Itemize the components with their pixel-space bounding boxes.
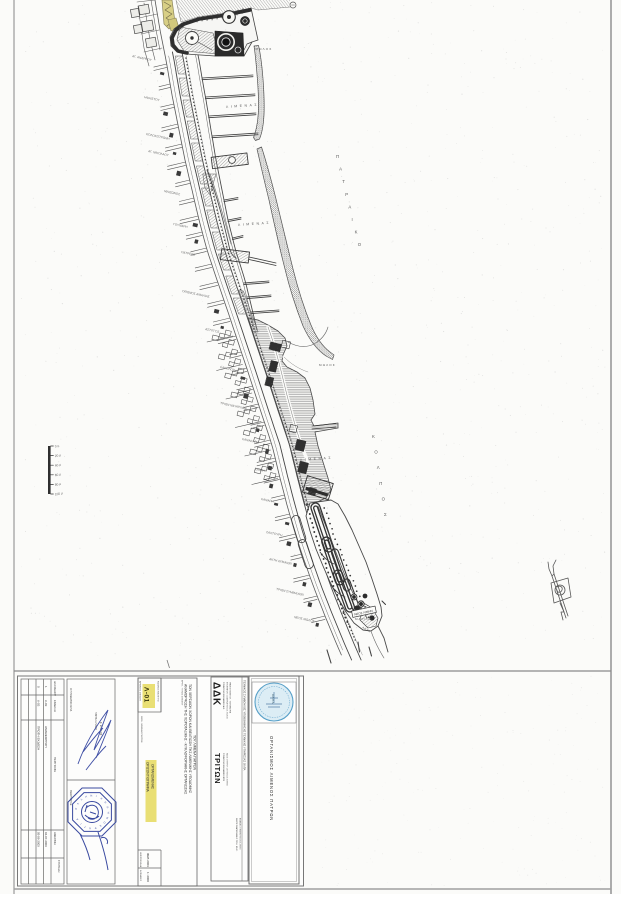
svg-text:Κ: Κ	[355, 230, 358, 235]
svg-text:ΕΡΓΟ - ΤΙΤΛΟΣ ΣΧΕΔΙΟΥ: ΕΡΓΟ - ΤΙΤΛΟΣ ΣΧΕΔΙΟΥ	[181, 680, 184, 706]
svg-text:ΘΕΣΗ: ΛΙΜΕΝΑΣ ΠΑΤΡΩΝ: ΘΕΣΗ: ΛΙΜΕΝΑΣ ΠΑΤΡΩΝ	[140, 716, 143, 743]
svg-text:05-06-2003: 05-06-2003	[37, 832, 41, 847]
svg-text:ΟΡΓΑΝΙΣΜΟΣ ΛΙΜΕΝΟΣ ΠΑΤΡΩΝ: ΟΡΓΑΝΙΣΜΟΣ ΛΙΜΕΝΟΣ ΠΑΤΡΩΝ	[269, 736, 274, 821]
svg-text:ΤΕΧΝΙΚΟΣ ΣΥΜΒΟΥΛΟΣ ΥΠΟΒΟΗΘΗΣΗΣ: ΤΕΧΝΙΚΟΣ ΣΥΜΒΟΥΛΟΣ ΥΠΟΒΟΗΘΗΣΗΣ ΤΕΧΝΙΚΗΣ …	[243, 680, 247, 771]
svg-text:Λ: Λ	[377, 465, 380, 470]
svg-text:ΟΡΓΑΝΩΜΕΝΗΣ: ΟΡΓΑΝΩΜΕΝΗΣ	[150, 764, 154, 789]
svg-text:ΔΔΚ: ΔΔΚ	[211, 682, 222, 706]
svg-text:Τ: Τ	[342, 179, 345, 184]
svg-text:ΜΩΛΟΣ: ΜΩΛΟΣ	[256, 47, 273, 51]
svg-text:ΑΝΑΘΕΩΡΗΣΗ: ΑΝΑΘΕΩΡΗΣΗ	[44, 726, 48, 748]
svg-text:ΕΝΔΕΙΞΗ: ΕΝΔΕΙΞΗ	[53, 700, 57, 712]
svg-text:ΙΠΠΟΚΡΑΤΟΥΣ 12 ΑΘΗΝΑ ΤΗΛ 210-3: ΙΠΠΟΚΡΑΤΟΥΣ 12 ΑΘΗΝΑ ΤΗΛ 210-3614520	[226, 682, 229, 719]
svg-text:ΤΡΙΤΩΝ: ΤΡΙΤΩΝ	[213, 753, 222, 784]
svg-text:ΟΛΠΑ: ΟΛΠΑ	[271, 694, 275, 704]
svg-text:0 μ: 0 μ	[54, 444, 59, 449]
svg-text:α/α ΣΧΕΔΙΟΥ: α/α ΣΧΕΔΙΟΥ	[53, 681, 56, 696]
svg-text:ΤΟΥ ΛΙΜΕΝΑ ΠΑΤΡΩΝ: ΤΟΥ ΛΙΜΕΝΑ ΠΑΤΡΩΝ	[193, 735, 197, 771]
svg-text:ΦΕΒ 2003: ΦΕΒ 2003	[146, 853, 150, 867]
svg-text:Η: Η	[107, 812, 111, 814]
svg-text:Α: Α	[348, 204, 351, 209]
svg-text:Κ: Κ	[372, 434, 375, 439]
svg-text:Ο ΠΡΟΕΔΡΟΣ ΟΛΠΑ: Ο ΠΡΟΕΔΡΟΣ ΟΛΠΑ	[69, 688, 72, 712]
svg-text:Σ: Σ	[384, 512, 387, 517]
svg-text:ΠΡΩΤΗ ΕΚΔΟΣΗ: ΠΡΩΤΗ ΕΚΔΟΣΗ	[37, 726, 41, 750]
svg-text:ΣΥΜΒΟΥΛΟΙ ΜΗΧΑΝΙΚΟΙ Α.Ε.: ΣΥΜΒΟΥΛΟΙ ΜΗΧΑΝΙΚΟΙ Α.Ε.	[222, 682, 225, 710]
svg-text:Π: Π	[379, 481, 382, 486]
svg-text:ΜΑΡΙΝΑ: ΜΑΡΙΝΑ	[355, 617, 373, 621]
svg-text:ΠΕΡΙΓΡΑΦΗ: ΠΕΡΙΓΡΑΦΗ	[53, 757, 57, 772]
svg-text:Ρ: Ρ	[345, 192, 348, 197]
svg-text:1: 2000: 1: 2000	[146, 872, 150, 882]
svg-text:Ι: Ι	[352, 217, 353, 222]
svg-text:ΤΩΝ ΧΕΡΣΑΙΩΝ ΧΩΡΩΝ ΚΑΙ ΒΕΛΤΙΩΣ: ΤΩΝ ΧΕΡΣΑΙΩΝ ΧΩΡΩΝ ΚΑΙ ΒΕΛΤΙΩΣΗ ΤΗΣ ΛΙΜΕ…	[188, 684, 192, 793]
svg-text:ΑΡΙΘΜΟΣ ΣΧΕΔΙΟΥ: ΑΡΙΘΜΟΣ ΣΧΕΔΙΟΥ	[139, 681, 142, 702]
svg-text:ΛΕΩΦ. ΣΥΓΓΡΟΥ 128 ΤΗΛ 210-9588: ΛΕΩΦ. ΣΥΓΓΡΟΥ 128 ΤΗΛ 210-9588820	[226, 753, 229, 786]
svg-text:ΟΡΙΖΟΝΤΙΟΓΡΑΦΙΑ: ΟΡΙΖΟΝΤΙΟΓΡΑΦΙΑ	[145, 762, 149, 793]
svg-text:Π: Π	[336, 154, 339, 159]
svg-text:Λ-03: Λ-03	[37, 700, 41, 707]
svg-text:ΣΥΜΒΟΥΛΟΙ ΜΗΧΑΝΙΚΟΙ ΕΠΕ: ΣΥΜΒΟΥΛΟΙ ΜΗΧΑΝΙΚΟΙ ΕΠΕ	[222, 753, 225, 782]
svg-text:Λ-01: Λ-01	[143, 687, 150, 703]
svg-text:ΗΜΕΡΟΜΗΝΙΑ: ΗΜΕΡΟΜΗΝΙΑ	[139, 852, 142, 868]
svg-text:ΝΙΚΟΣ ΜΑΡΚΙΖΑΝΗΣ ΠΟΛ. ΜΗΧ.: ΝΙΚΟΣ ΜΑΡΚΙΖΑΝΗΣ ΠΟΛ. ΜΗΧ.	[235, 818, 238, 852]
svg-text:Α: Α	[339, 167, 342, 172]
svg-text:ΣΥΝΤΑΞΗ: ΣΥΝΤΑΞΗ	[57, 860, 61, 872]
svg-text:ΚΩΔΙΚΟΣ ΜΕΛΕΤΗΣ: ΚΩΔΙΚΟΣ ΜΕΛΕΤΗΣ	[157, 681, 160, 702]
svg-text:04-07-2003: 04-07-2003	[44, 832, 48, 847]
svg-text:ΚΛΙΜΑΚΕΣ: ΚΛΙΜΑΚΕΣ	[139, 870, 142, 882]
svg-text:ΗΜΕΡ/ΝΙΑ: ΗΜΕΡ/ΝΙΑ	[53, 832, 57, 845]
svg-text:ΑΜΑΛΙΑΣ 23 ΠΑΤΡΑ ΤΗΛ 2610-3368: ΑΜΑΛΙΑΣ 23 ΠΑΤΡΑ ΤΗΛ 2610-336855	[239, 818, 242, 850]
svg-text:ΑΝΑΜΟΡΦΩΣΗ ΤΗΣ ΧΩΡΟΤΑΞΙΚΗΣ - Κ: ΑΝΑΜΟΡΦΩΣΗ ΤΗΣ ΧΩΡΟΤΑΞΙΚΗΣ - ΚΥΚΛΟΦΟΡΙΑΚ…	[184, 684, 188, 794]
svg-text:ΓΡΑΦΕΙΟ ΜΕΛΕΤΩΝ - ΤΕΧΝΙΚΑ ΕΡΓΑ: ΓΡΑΦΕΙΟ ΜΕΛΕΤΩΝ - ΤΕΧΝΙΚΑ ΕΡΓΑ	[229, 682, 232, 714]
svg-text:Λ-03: Λ-03	[44, 700, 48, 707]
svg-text:ΜΩΛΟΣ: ΜΩΛΟΣ	[319, 363, 336, 367]
